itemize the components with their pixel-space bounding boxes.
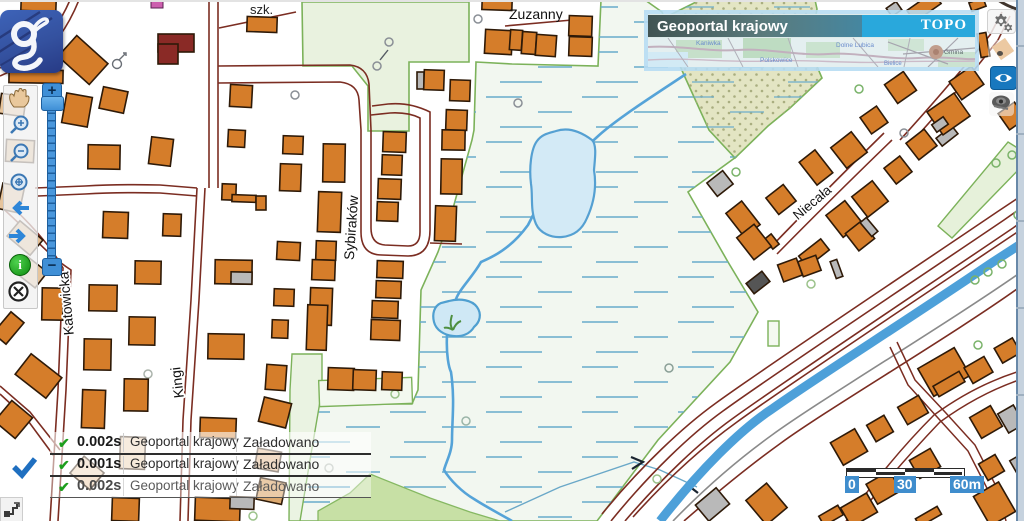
svg-text:szk.: szk. [250,2,273,17]
svg-text:Zuzanny: Zuzanny [509,6,563,22]
